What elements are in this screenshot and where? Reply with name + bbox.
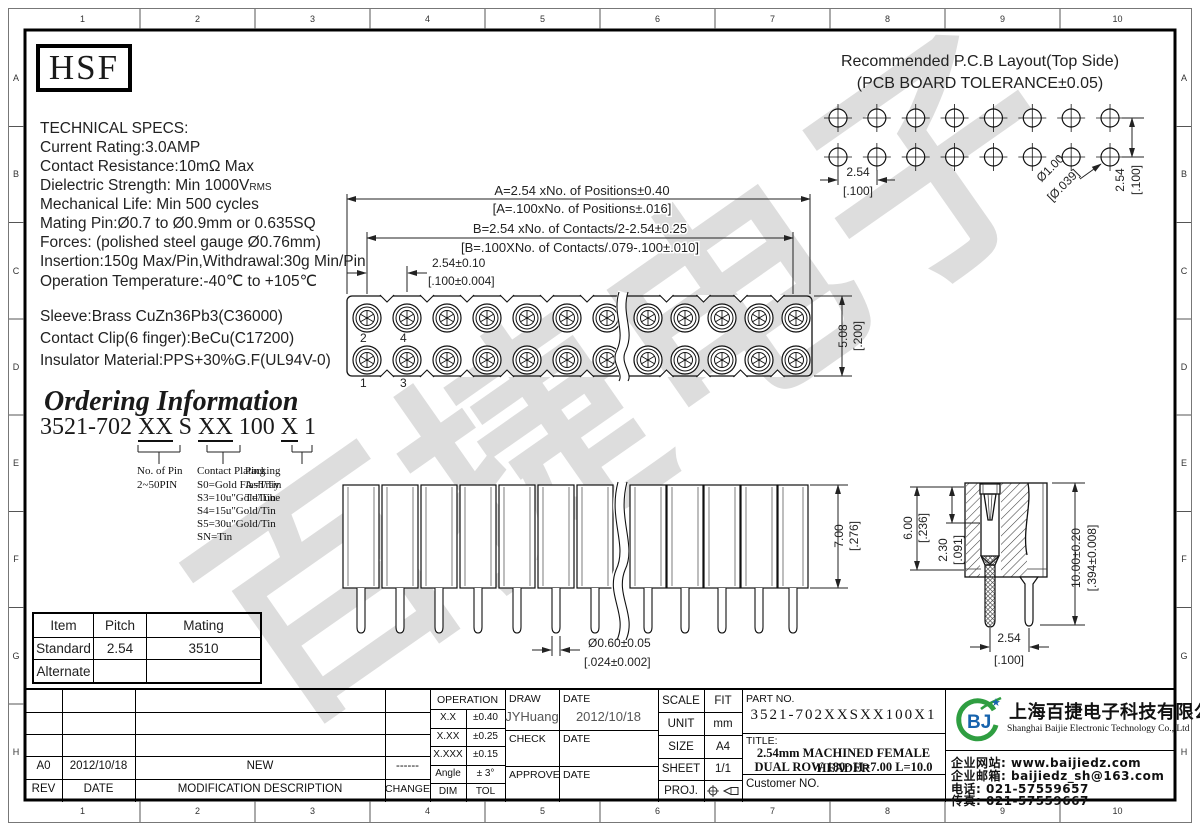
dim-a-in: [A=.100xNo. of Positions±.016] xyxy=(493,201,672,216)
dim-entry-in: [.091] xyxy=(951,535,965,565)
tol-dim: Angle xyxy=(430,768,466,779)
table-header: Pitch xyxy=(93,614,146,637)
tol-val: ±0.25 xyxy=(466,731,505,742)
dim-b-mm: B=2.54 xNo. of Contacts/2-2.54±0.25 xyxy=(473,221,687,236)
dim-depth-mm: 6.00 xyxy=(901,516,915,540)
date-label: DATE xyxy=(563,733,590,745)
size-label: SIZE xyxy=(658,741,704,753)
table-header: Item xyxy=(34,614,93,637)
hsf-logo-text: HSF xyxy=(49,48,119,88)
customer-no-label: Customer NO. xyxy=(746,778,820,790)
ruler-col-label: 9 xyxy=(945,10,1060,28)
ruler-row-label: B xyxy=(8,126,24,222)
ruler-col-label: 5 xyxy=(485,802,600,821)
mod-desc-header: MODIFICATION DESCRIPTION xyxy=(135,783,385,795)
dim-body-height-in: [.276] xyxy=(847,521,861,551)
spec-line: Mechanical Life: Min 500 cycles xyxy=(40,196,259,214)
ruler-col-label: 3 xyxy=(255,10,370,28)
ordering-leader-lines xyxy=(40,440,340,550)
ordering-part-number: 3521-702 XX S XX 100 X 1 xyxy=(40,414,316,441)
draw-name: JYHuang xyxy=(505,709,559,724)
check-label: CHECK xyxy=(509,733,546,745)
ruler-row-label: A xyxy=(8,30,24,126)
dim-depth-in: [.236] xyxy=(916,513,930,543)
ruler-col-label: 3 xyxy=(255,802,370,821)
title-block: A0 2012/10/18 NEW ------ REV DATE MODIFI… xyxy=(25,688,1175,802)
tol-dim: DIM xyxy=(430,786,466,797)
ruler-col-label: 8 xyxy=(830,10,945,28)
spec-line: Mating Pin:Ø0.7 to Ø0.9mm or 0.635SQ xyxy=(40,215,316,233)
ruler-col-label: 6 xyxy=(600,802,715,821)
table-cell xyxy=(146,659,260,682)
dim-pin-pitch-mm: 2.54 xyxy=(997,631,1021,645)
date-label: DATE xyxy=(563,769,590,781)
ruler-row-label: D xyxy=(1176,319,1192,415)
date-label: DATE xyxy=(563,693,590,705)
draw-label: DRAW xyxy=(509,693,541,705)
pcb-pitch-dim: 2.54 xyxy=(846,165,870,179)
connector-side-view: 7.00 [.276] Ø0.60±0.05 [.024±0.002] xyxy=(340,470,885,685)
part-no-label: PART NO. xyxy=(746,693,794,705)
draw-date: 2012/10/18 xyxy=(559,709,658,724)
plating-option: S5=30u"Gold/Tin xyxy=(197,518,276,530)
spec-line: Insertion:150g Max/Pin,Withdrawal:30g Mi… xyxy=(40,253,366,271)
part-title-line2: DUAL ROW 180° H=7.00 L=10.0 xyxy=(742,760,945,775)
pcb-hole-array xyxy=(824,104,1124,171)
ruler-row-label: E xyxy=(8,415,24,511)
unit-value: mm xyxy=(704,718,742,730)
material-line: Insulator Material:PPS+30%G.F(UL94V-0) xyxy=(40,352,331,370)
dim-body-height-mm: 7.00 xyxy=(832,524,846,548)
ruler-col-label: 1 xyxy=(25,10,140,28)
break-line xyxy=(615,292,629,381)
dim-entry-mm: 2.30 xyxy=(936,538,950,562)
pcb-row-dim-in: [.100] xyxy=(1129,165,1143,195)
ruler-row-label: C xyxy=(1176,223,1192,319)
pcb-row-dim: 2.54 xyxy=(1113,168,1127,192)
ruler-col-label: 2 xyxy=(140,10,255,28)
packing-option: A=Tray xyxy=(245,479,280,491)
spec-line: Dielectric Strength: Min 1000VRMS xyxy=(40,177,272,195)
spec-line: Contact Resistance:10mΩ Max xyxy=(40,158,254,176)
ruler-col-label: 4 xyxy=(370,10,485,28)
rev-header: REV xyxy=(25,783,62,795)
material-line: Contact Clip(6 finger):BeCu(C17200) xyxy=(40,330,294,348)
datasheet-page: 百捷电子 1122334455667788991010AABBCCDDEEFFG… xyxy=(0,0,1200,831)
plating-option: SN=Tin xyxy=(197,531,232,543)
ruler-row-label: H xyxy=(8,704,24,800)
ruler-col-label: 2 xyxy=(140,802,255,821)
specs-title: TECHNICAL SPECS: xyxy=(40,120,188,138)
ruler-col-label: 5 xyxy=(485,10,600,28)
date-header: DATE xyxy=(62,783,135,795)
scale-label: SCALE xyxy=(658,695,704,707)
dim-a-mm: A=2.54 xNo. of Positions±0.40 xyxy=(494,183,669,198)
tol-dim: X.XXX xyxy=(430,749,466,760)
break-line xyxy=(613,482,629,640)
scale-value: FIT xyxy=(704,695,742,707)
dim-height-in: [.200] xyxy=(851,321,865,351)
table-cell: Standard xyxy=(34,637,93,660)
spec-line: Current Rating:3.0AMP xyxy=(40,139,200,157)
sheet-label: SHEET xyxy=(658,763,704,775)
dim-pin-dia-mm: Ø0.60±0.05 xyxy=(588,636,651,650)
part-number: 3521-702XXSXX100X1 xyxy=(742,707,945,724)
packing-option: T=Tube xyxy=(245,492,280,504)
sheet-value: 1/1 xyxy=(704,763,742,775)
tol-val: TOL xyxy=(466,786,505,797)
logo-star-icon: ★ xyxy=(991,697,1001,709)
ruler-col-label: 1 xyxy=(25,802,140,821)
table-cell: 2.54 xyxy=(93,637,146,660)
dim-overall-in: [.394±0.008] xyxy=(1085,525,1099,592)
dim-overall-mm: 10.00±0.20 xyxy=(1069,528,1083,588)
third-angle-projection-icon xyxy=(706,784,742,798)
approve-label: APPROVE xyxy=(509,769,560,781)
company-logo: BJ ★ xyxy=(949,694,1005,748)
ruler-col-label: 10 xyxy=(1060,10,1175,28)
pin-number-4: 4 xyxy=(400,331,407,345)
change-header: CHANGE xyxy=(385,783,430,795)
ruler-col-label: 7 xyxy=(715,10,830,28)
rev-change: ------ xyxy=(385,760,430,772)
pcb-layout-subtitle: (PCB BOARD TOLERANCE±0.05) xyxy=(810,75,1150,93)
company-fax: 传真: 021-57559667 xyxy=(951,792,1089,809)
tol-val: ±0.15 xyxy=(466,749,505,760)
dim-b-in: [B=.100XNo. of Contacts/.079-.100±.010] xyxy=(461,240,699,255)
size-value: A4 xyxy=(704,741,742,753)
dim-height-mm: 5.08 xyxy=(836,324,850,348)
table-cell: 3510 xyxy=(146,637,260,660)
pin-count-value: 2~50PIN xyxy=(137,479,177,491)
ruler-row-label: F xyxy=(8,511,24,607)
ruler-col-label: 6 xyxy=(600,10,715,28)
rev-date: 2012/10/18 xyxy=(62,760,135,772)
ruler-row-label: D xyxy=(8,319,24,415)
packing-title: Packing xyxy=(245,465,280,477)
ruler-row-label: C xyxy=(8,223,24,319)
pin-number-2: 2 xyxy=(360,331,367,345)
spec-line: Forces: (polished steel gauge Ø0.76mm) xyxy=(40,234,321,252)
material-line: Sleeve:Brass CuZn36Pb3(C36000) xyxy=(40,308,283,326)
vrms-subscript: RMS xyxy=(249,182,271,193)
ruler-col-label: 8 xyxy=(830,802,945,821)
plating-option: S4=15u"Gold/Tin xyxy=(197,505,276,517)
pin-number-3: 3 xyxy=(400,376,407,390)
unit-label: UNIT xyxy=(658,718,704,730)
ruler-row-label: G xyxy=(8,608,24,704)
company-logo-text: BJ xyxy=(967,712,991,733)
hsf-logo: HSF xyxy=(36,44,132,92)
side-view-body xyxy=(343,485,808,633)
pcb-layout-title: Recommended P.C.B Layout(Top Side) xyxy=(810,53,1150,71)
tol-dim: X.XX xyxy=(430,731,466,742)
table-header: Mating xyxy=(146,614,260,637)
contact-array xyxy=(353,304,810,374)
company-name-en: Shanghai Baijie Electronic Technology Co… xyxy=(1007,724,1190,734)
connector-top-view: A=2.54 xNo. of Positions±0.40 [A=.100xNo… xyxy=(340,180,885,415)
pin-count-title: No. of Pin xyxy=(137,465,183,477)
ruler-col-label: 4 xyxy=(370,802,485,821)
rev-value: A0 xyxy=(25,760,62,772)
pin-number-1: 1 xyxy=(360,376,367,390)
spec-line: Operation Temperature:-40℃ to +105℃ xyxy=(40,272,317,291)
table-cell: Alternate xyxy=(34,659,93,682)
proj-label: PROJ. xyxy=(658,785,704,797)
rev-desc: NEW xyxy=(135,760,385,772)
tol-val: ± 3° xyxy=(466,768,505,779)
tol-dim: X.X xyxy=(430,712,466,723)
table-cell xyxy=(93,659,146,682)
dim-pitch-in: [.100±0.004] xyxy=(428,274,495,288)
mating-table: Item Pitch Mating Standard 2.54 3510 Alt… xyxy=(32,612,262,684)
company-name-cn: 上海百捷电子科技有限公司 xyxy=(1009,698,1175,724)
operation-header: OPERATION xyxy=(430,694,505,706)
connector-section-view: 6.00 [.236] 2.30 [.091] 10.00±0.20 [.394… xyxy=(880,470,1200,685)
dim-pin-dia-in: [.024±0.002] xyxy=(584,655,651,669)
dim-pin-pitch-in: [.100] xyxy=(994,653,1024,667)
ruler-col-label: 7 xyxy=(715,802,830,821)
dim-pitch-mm: 2.54±0.10 xyxy=(432,256,486,270)
tol-val: ±0.40 xyxy=(466,712,505,723)
